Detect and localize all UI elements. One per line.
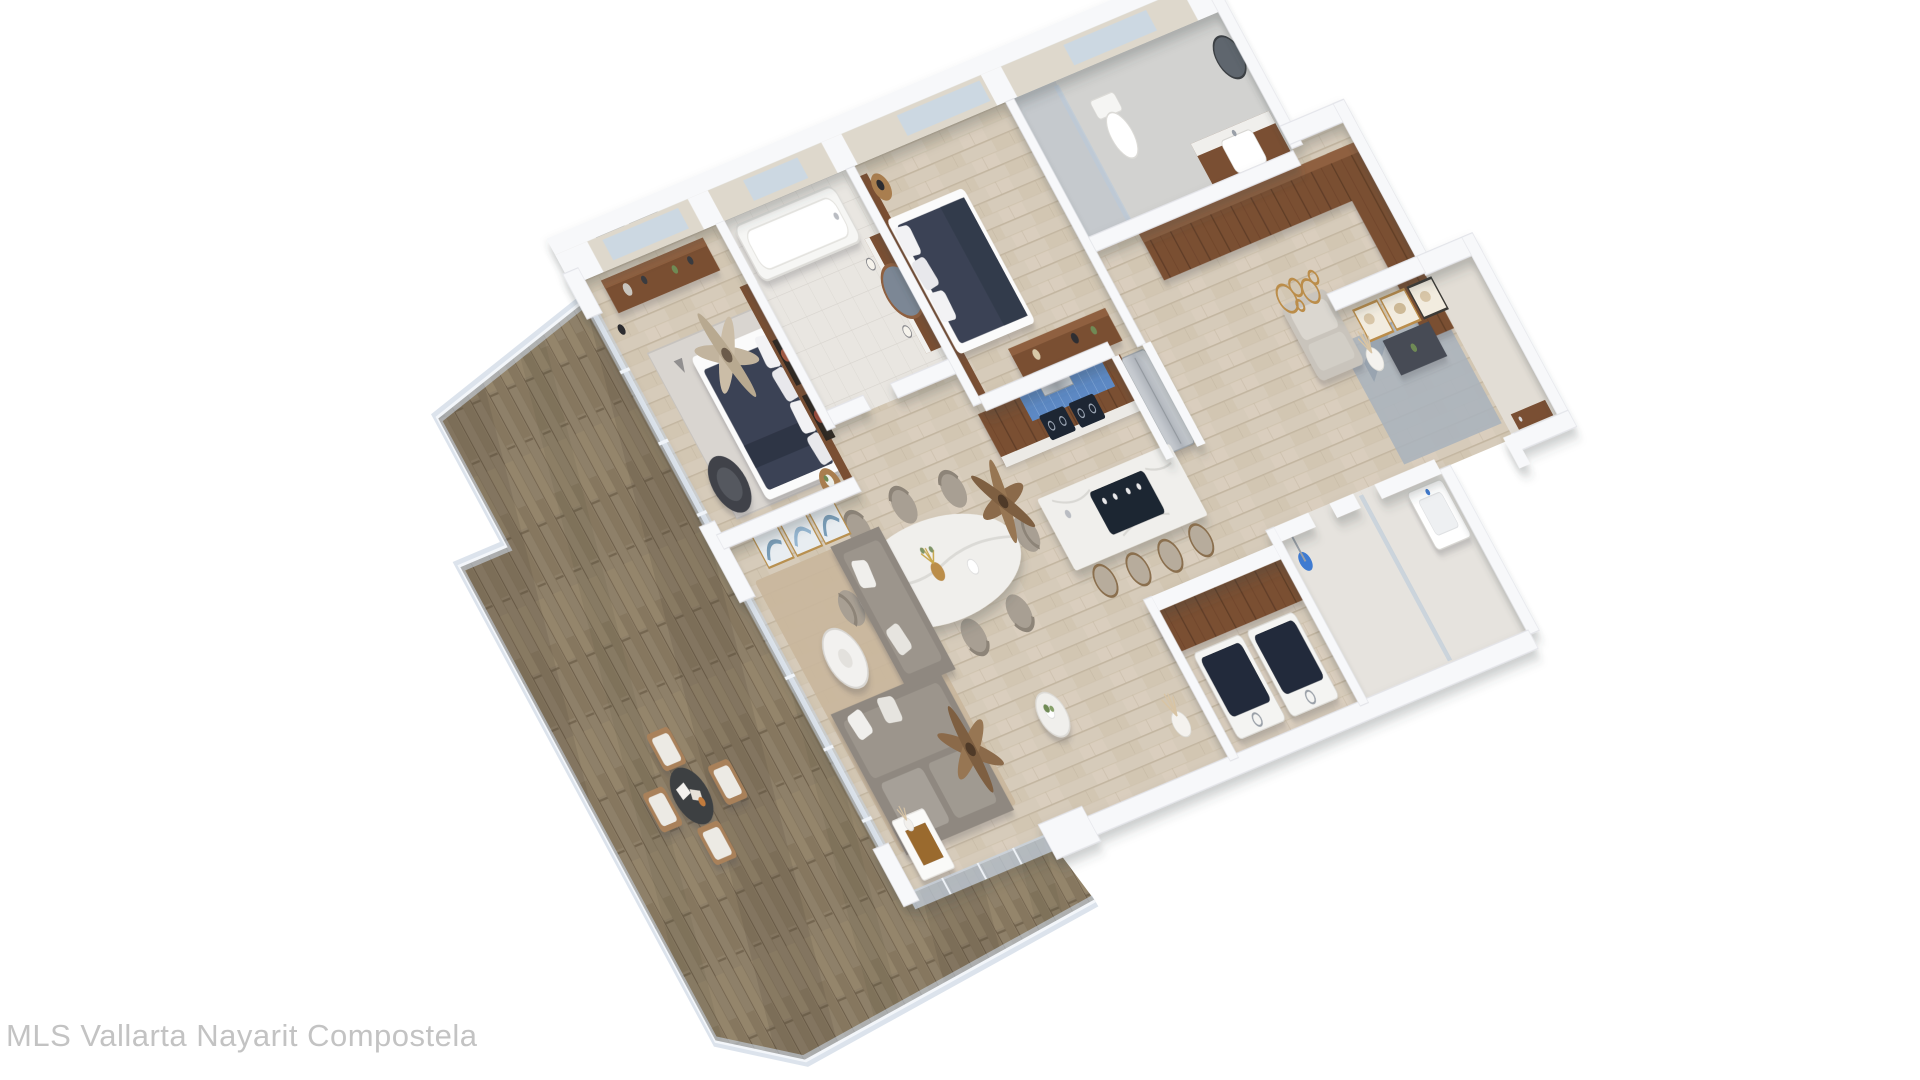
floor-plan-render: MLS Vallarta Nayarit Compostela bbox=[0, 0, 1920, 1080]
floor-plan-canvas bbox=[0, 0, 1920, 1080]
watermark-text: MLS Vallarta Nayarit Compostela bbox=[6, 1018, 478, 1054]
